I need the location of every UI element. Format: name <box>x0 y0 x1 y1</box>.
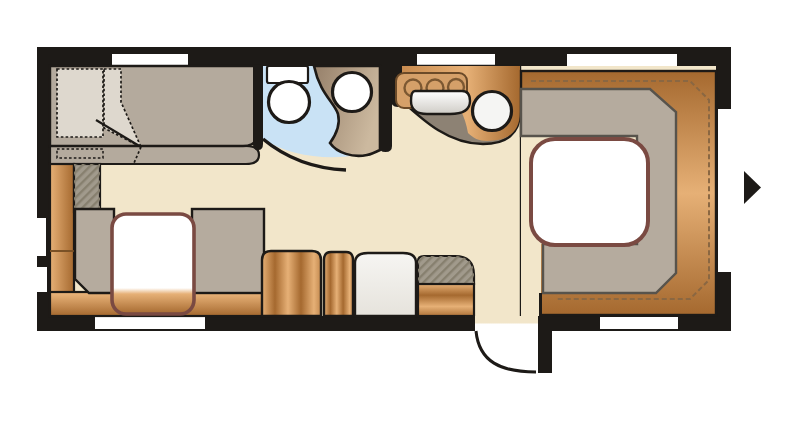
fridge <box>355 253 416 316</box>
window-bottom-lounge <box>600 317 678 329</box>
caravan-floorplan <box>0 0 785 438</box>
side-table <box>112 214 194 314</box>
washbasin <box>333 73 372 112</box>
window-top-kitchen <box>417 54 495 66</box>
entry-door-arc <box>476 331 536 372</box>
washroom-wall-left <box>253 66 263 150</box>
washroom-wall-right <box>379 66 392 152</box>
window-right-lounge <box>718 109 731 272</box>
wardrobe <box>50 164 74 294</box>
window-top-bedroom <box>112 54 188 66</box>
toilet <box>269 82 310 123</box>
entry-cabinet-front <box>418 284 474 316</box>
entry-door-leaf <box>538 316 552 373</box>
cabinet-wood-wide <box>262 251 321 316</box>
entry-cabinet-hatch <box>418 256 474 284</box>
entry-door-opening <box>475 316 538 331</box>
direction-arrow-icon <box>744 171 761 204</box>
side-seat-left <box>75 209 114 293</box>
window-top-lounge <box>567 54 677 66</box>
lounge-bench-edge <box>539 293 542 316</box>
side-seat-right <box>192 209 264 293</box>
window-left-upper <box>37 218 46 256</box>
mirror-cabinet-hatch <box>74 164 100 212</box>
window-bottom-dinette <box>95 317 205 329</box>
cabinet-wood-narrow <box>324 252 353 316</box>
duvet-panel <box>57 69 103 137</box>
lounge-table <box>531 139 648 245</box>
kitchen-sink <box>473 92 512 131</box>
floorplan-stage <box>0 0 785 438</box>
sink-cover <box>411 91 470 114</box>
window-left-lower <box>36 267 47 292</box>
